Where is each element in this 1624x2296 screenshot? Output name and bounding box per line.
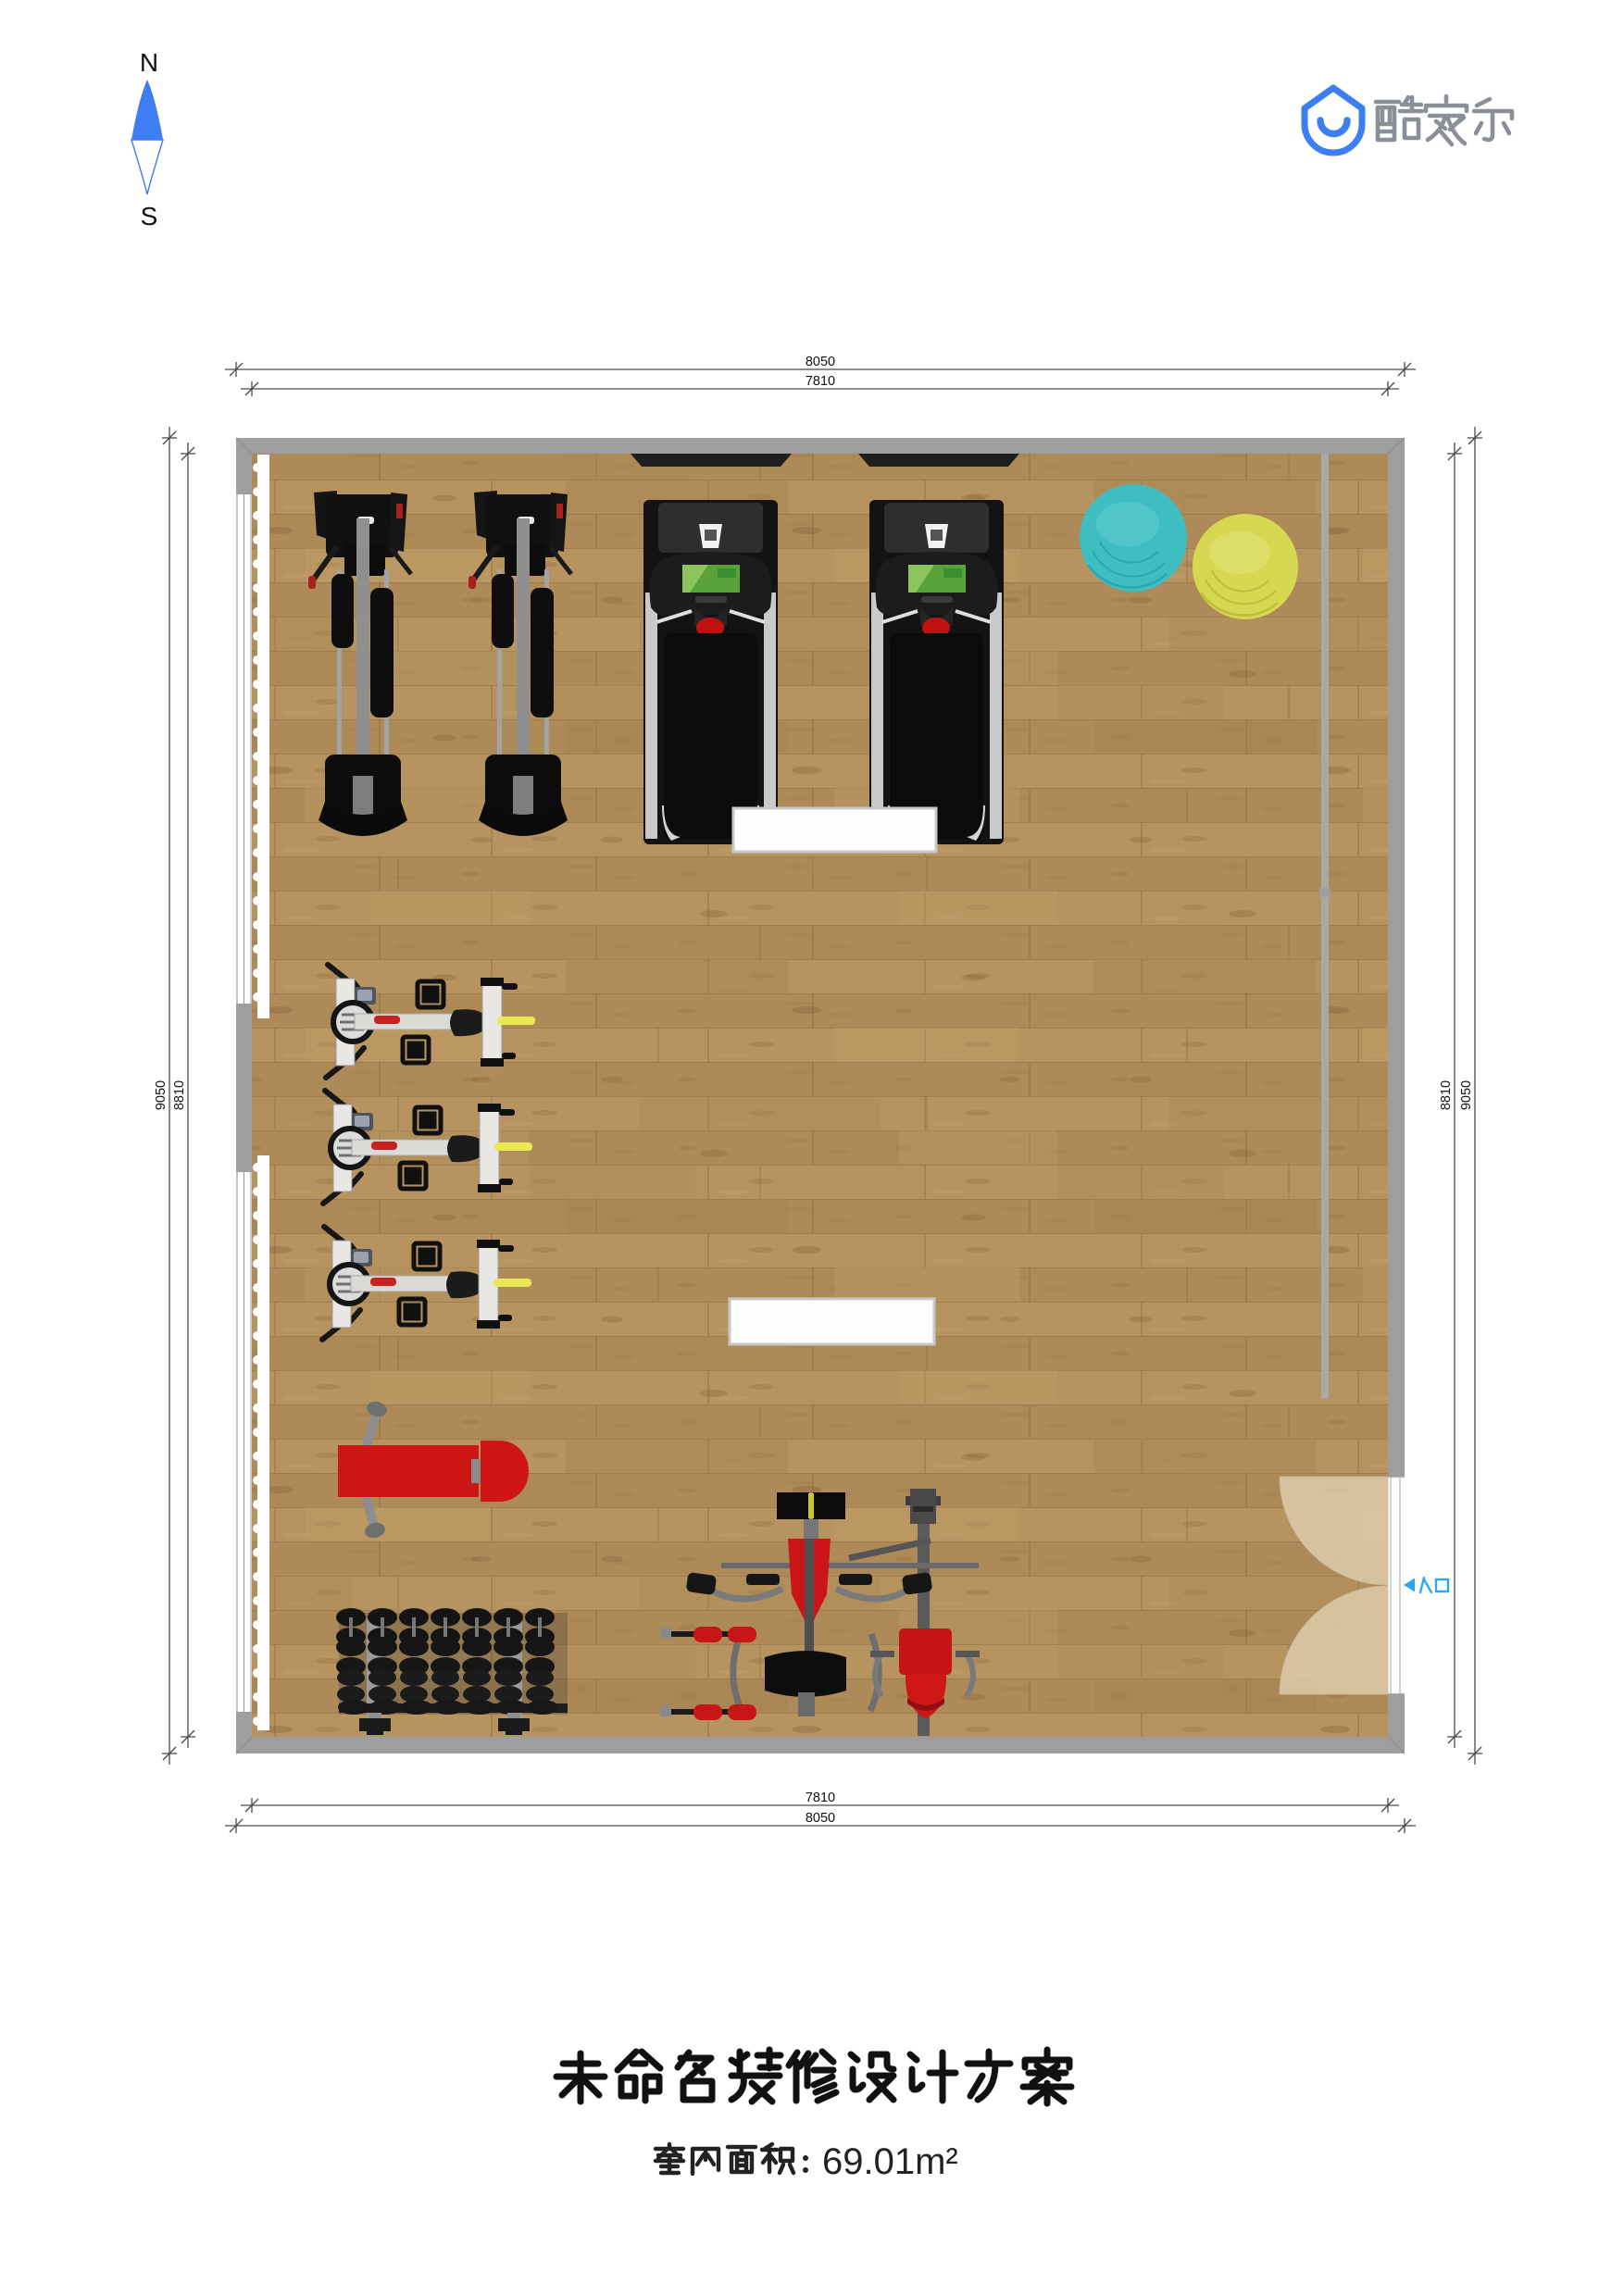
svg-text:S: S	[141, 202, 158, 231]
svg-text:7810: 7810	[806, 374, 835, 389]
svg-text:8050: 8050	[806, 1811, 835, 1826]
svg-text:9050: 9050	[1459, 1080, 1474, 1110]
svg-text:8810: 8810	[1439, 1080, 1454, 1110]
svg-text:7810: 7810	[806, 1791, 835, 1805]
svg-text:9050: 9050	[154, 1080, 169, 1110]
svg-text:8050: 8050	[806, 355, 835, 369]
svg-text:8810: 8810	[172, 1080, 187, 1110]
svg-text:69.01m²: 69.01m²	[822, 2141, 958, 2182]
svg-text:N: N	[140, 48, 158, 77]
